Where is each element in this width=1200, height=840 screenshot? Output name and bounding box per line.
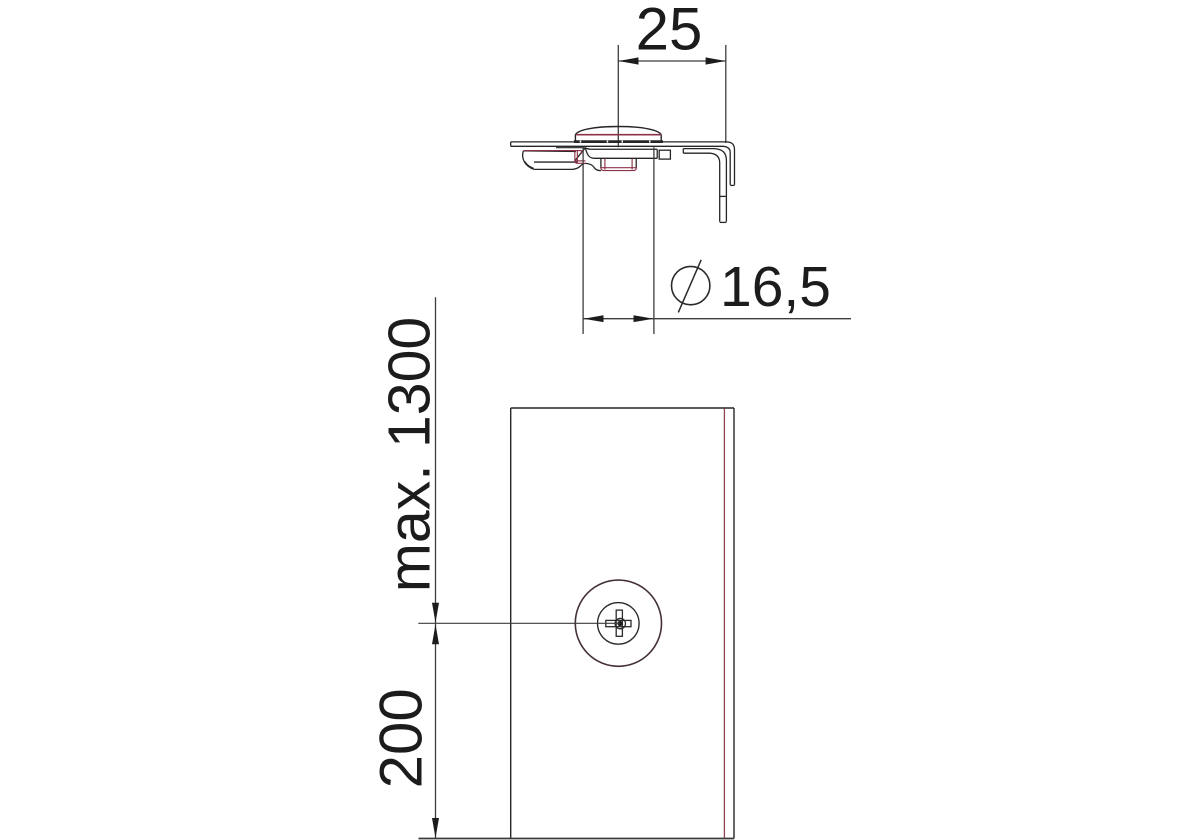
- svg-text:16,5: 16,5: [720, 255, 831, 319]
- svg-text:25: 25: [636, 0, 703, 63]
- svg-text:200: 200: [368, 688, 435, 788]
- svg-text:max. 1300: max. 1300: [377, 317, 443, 593]
